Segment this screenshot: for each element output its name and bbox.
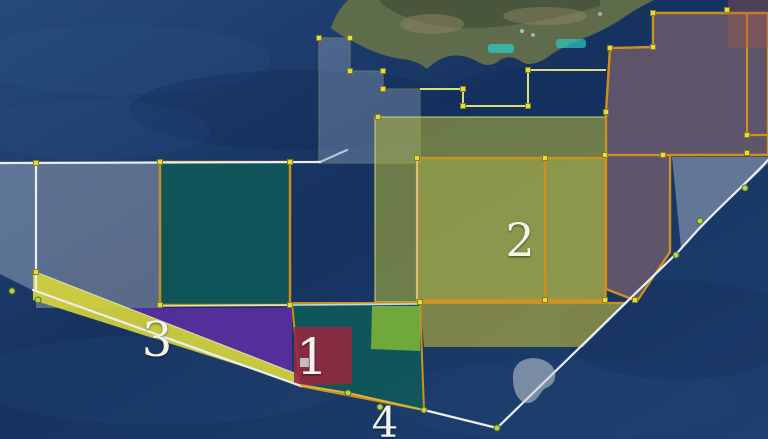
- vertex-marker[interactable]: [376, 115, 381, 120]
- vertex-marker[interactable]: [288, 160, 293, 165]
- vertex-marker[interactable]: [745, 151, 750, 156]
- island-terrain-patch: [400, 14, 464, 34]
- vertex-marker[interactable]: [381, 87, 386, 92]
- vertex-marker[interactable]: [381, 69, 386, 74]
- vertex-marker[interactable]: [661, 153, 666, 158]
- block-label-4: 4: [372, 398, 399, 439]
- boundary-dot[interactable]: [9, 288, 15, 294]
- vertex-marker[interactable]: [34, 161, 39, 166]
- settlement-speckle: [520, 29, 524, 33]
- boundary-dot[interactable]: [35, 297, 41, 303]
- vertex-marker[interactable]: [543, 298, 548, 303]
- boundary-dot[interactable]: [673, 252, 679, 258]
- red-overlay-corner[interactable]: [728, 0, 768, 48]
- vertex-marker[interactable]: [348, 36, 353, 41]
- vertex-marker[interactable]: [603, 153, 608, 158]
- block-teal-square[interactable]: [160, 162, 290, 305]
- vertex-marker[interactable]: [158, 160, 163, 165]
- block-green[interactable]: [371, 306, 420, 351]
- vertex-marker[interactable]: [461, 104, 466, 109]
- boundary-dot[interactable]: [697, 218, 703, 224]
- vertex-marker[interactable]: [461, 87, 466, 92]
- boundary-dot[interactable]: [494, 425, 500, 431]
- vertex-marker[interactable]: [526, 104, 531, 109]
- vertex-marker[interactable]: [603, 298, 608, 303]
- vertex-marker[interactable]: [34, 270, 39, 275]
- block-label-1: 1: [296, 328, 328, 386]
- city-area-patch: [556, 39, 586, 48]
- vertex-marker[interactable]: [604, 110, 609, 115]
- block-label-2: 2: [505, 213, 534, 267]
- vertex-marker[interactable]: [651, 11, 656, 16]
- boundary-dot[interactable]: [421, 407, 427, 413]
- vertex-marker[interactable]: [418, 300, 423, 305]
- settlement-speckle: [598, 12, 602, 16]
- vertex-marker[interactable]: [526, 68, 531, 73]
- vertex-marker[interactable]: [543, 156, 548, 161]
- boundary-dot[interactable]: [345, 390, 351, 396]
- map-canvas[interactable]: 1 2 3 4: [0, 0, 768, 439]
- island-terrain-patch: [503, 7, 587, 25]
- vertex-marker[interactable]: [158, 303, 163, 308]
- vertex-marker[interactable]: [745, 133, 750, 138]
- vertex-marker[interactable]: [288, 303, 293, 308]
- vertex-marker[interactable]: [725, 8, 730, 13]
- block-label-3: 3: [142, 312, 173, 368]
- city-area-patch: [488, 44, 514, 53]
- vertex-marker[interactable]: [415, 156, 420, 161]
- settlement-speckle: [531, 33, 535, 37]
- block-gray-far-left[interactable]: [0, 163, 36, 292]
- vertex-marker[interactable]: [633, 298, 638, 303]
- vertex-marker[interactable]: [348, 69, 353, 74]
- vertex-marker[interactable]: [317, 36, 322, 41]
- vertex-marker[interactable]: [608, 46, 613, 51]
- vertex-marker[interactable]: [651, 45, 656, 50]
- boundary-dot[interactable]: [742, 185, 748, 191]
